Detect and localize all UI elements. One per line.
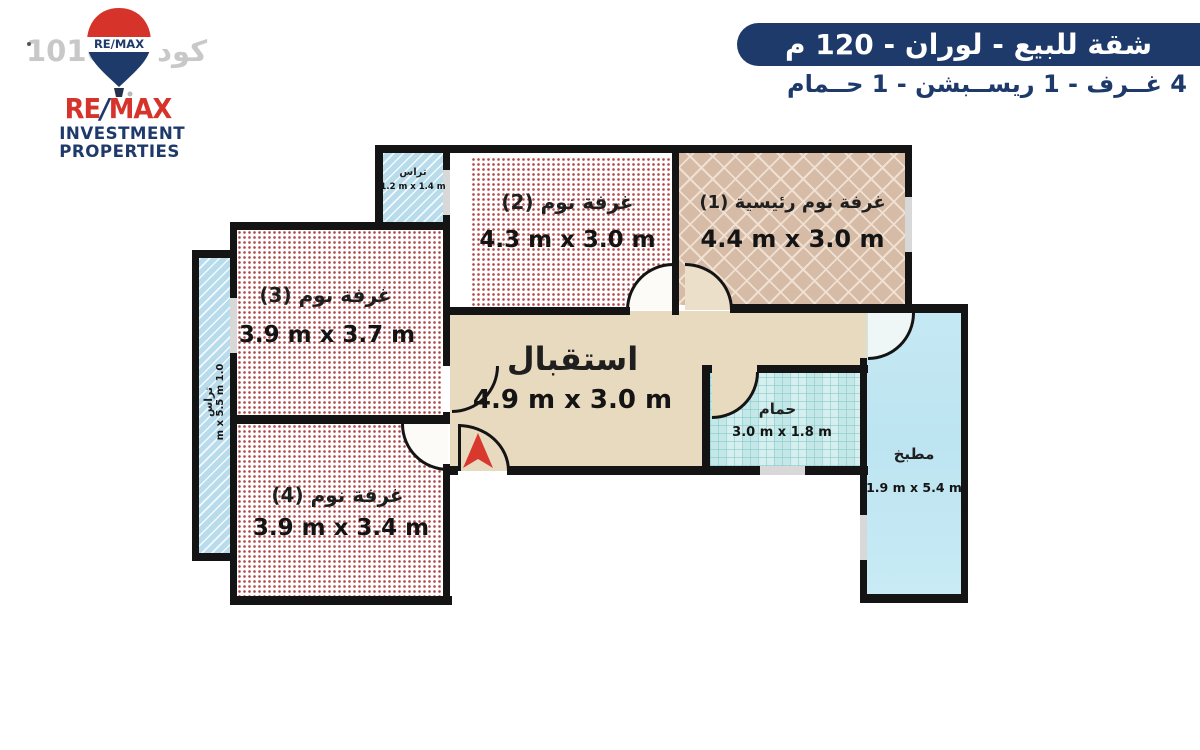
balloon-icon: RE/MAX <box>80 6 158 102</box>
wall <box>375 145 912 153</box>
brand-line2: PROPERTIES <box>59 142 177 162</box>
master-bedroom-window <box>905 197 912 252</box>
terrace-left-labels: تراس 1.0 m x 5.5 m <box>114 390 314 430</box>
wall <box>443 412 450 424</box>
kitchen-dims: 1.9 m x 5.4 m <box>865 480 963 495</box>
wall <box>905 145 912 197</box>
wall <box>443 215 450 366</box>
bedroom2-label: غرفة نوم (2) <box>470 190 665 214</box>
wall <box>443 145 450 170</box>
terrace-top-label: تراس <box>383 167 443 178</box>
terrace-top-dims: 1.2 m x 1.4 m <box>379 182 447 192</box>
bedroom3-label: غرفة نوم (3) <box>228 283 423 307</box>
terrace-left-dims: 1.0 m x 5.5 m <box>215 302 226 502</box>
wall <box>443 307 630 315</box>
bedroom3-dims: 3.9 m x 3.7 m <box>228 322 426 348</box>
brand-slash: / <box>100 92 108 125</box>
listing-subtitle: 4 غــرف - 1 ريســبشن - 1 حــمام <box>737 70 1187 98</box>
master-bedroom-label: غرفة نوم رئيسية (1) <box>685 192 900 213</box>
wall <box>230 596 452 605</box>
terrace-top-window <box>443 170 450 215</box>
wall <box>961 304 968 603</box>
kitchen-window <box>860 515 867 560</box>
master-bedroom-dims: 4.4 m x 3.0 m <box>685 225 900 253</box>
flyer-page: كود 101603 RE/MAX RE/MAX INVESTMENT PROP… <box>0 0 1200 750</box>
bedroom4-dims: 3.9 m x 3.4 m <box>242 515 440 541</box>
bathroom-label: حمام <box>715 400 840 418</box>
wall <box>860 304 867 313</box>
wall <box>905 252 912 313</box>
wall <box>805 466 868 475</box>
kitchen-label: مطبخ <box>867 445 961 463</box>
wall <box>443 464 450 605</box>
brand-re: RE <box>65 92 101 125</box>
bedroom2-dims: 4.3 m x 3.0 m <box>470 227 665 253</box>
listing-title-banner: شقة للبيع - لوران - 120 م <box>737 23 1200 66</box>
brand-max: MAX <box>109 92 172 125</box>
wall <box>672 145 679 315</box>
bedroom4-label: غرفة نوم (4) <box>240 483 435 507</box>
reception-dims: 4.9 m x 3.0 m <box>460 385 685 415</box>
wall <box>507 466 760 475</box>
brand-line1: INVESTMENT <box>59 124 177 144</box>
wall <box>230 222 450 230</box>
remax-logo: RE/MAX RE/MAX INVESTMENT PROPERTIES <box>0 0 250 170</box>
wall <box>702 365 710 475</box>
terrace-left-label: تراس <box>202 302 215 502</box>
bathroom-dims: 3.0 m x 1.8 m <box>712 425 852 440</box>
balloon-text: RE/MAX <box>94 37 144 51</box>
wall <box>757 365 868 373</box>
wall <box>730 304 961 313</box>
brand-wordmark: RE/MAX <box>63 92 173 125</box>
wall <box>860 594 968 603</box>
reception-label: استقبال <box>460 340 685 378</box>
bathroom-window <box>760 466 805 475</box>
wall <box>860 560 867 603</box>
entrance-arrow-icon <box>463 433 493 468</box>
